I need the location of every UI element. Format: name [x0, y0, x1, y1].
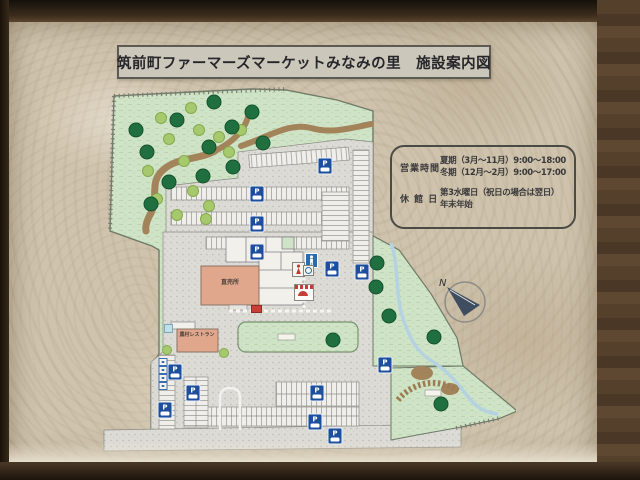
- parking-icon-letter: P: [312, 417, 317, 423]
- hours-info-box: 営業時間 夏期（3月～11月）9:00～18:00 冬期（12月～2月）9:00…: [390, 145, 576, 229]
- car-glyph: [321, 168, 330, 172]
- dirt-mound: [411, 366, 433, 380]
- sign-frame-top: [0, 0, 640, 22]
- parking-icon: P: [308, 414, 323, 431]
- tree: [170, 113, 184, 127]
- parking-icon-letter: P: [172, 367, 177, 373]
- parking-icon: P: [250, 244, 265, 261]
- business-hours-row: 営業時間 夏期（3月～11月）9:00～18:00 冬期（12月～2月）9:00…: [400, 155, 568, 180]
- parking-icon-letter: P: [382, 360, 387, 366]
- business-hours-label: 営業時間: [400, 161, 440, 174]
- tree: [204, 201, 215, 212]
- tree: [129, 123, 143, 137]
- parking-icon: P: [318, 158, 333, 175]
- bush: [219, 348, 229, 358]
- parking-icon: P: [168, 364, 183, 381]
- sign-title: 筑前町ファーマーズマーケットみなみの里 施設案内図: [117, 45, 491, 79]
- tree: [370, 256, 384, 270]
- car-glyph: [381, 367, 390, 371]
- compass-north-label: N: [439, 278, 447, 289]
- car-glyph: [253, 226, 262, 230]
- parking-icon: P: [186, 385, 201, 402]
- closed-days-row: 休 館 日 第3水曜日（祝日の場合は翌日） 年末年始: [400, 187, 568, 212]
- tree: [164, 134, 175, 145]
- summer-hours: 夏期（3月～11月）9:00～18:00: [440, 155, 566, 167]
- tree: [196, 169, 210, 183]
- tree: [226, 160, 240, 174]
- car-glyph: [253, 196, 262, 200]
- tree: [225, 120, 239, 134]
- tree: [188, 186, 199, 197]
- car-glyph: [189, 395, 198, 399]
- tree: [427, 330, 441, 344]
- tree: [144, 197, 158, 211]
- compass: N: [439, 278, 485, 322]
- closed-day-line: 第3水曜日（祝日の場合は翌日）: [440, 187, 559, 199]
- closed-day-line2: 年末年始: [440, 199, 559, 211]
- tree: [369, 280, 383, 294]
- kiosk-icon: [294, 284, 314, 301]
- tree: [140, 145, 154, 159]
- car-glyph: [358, 274, 367, 278]
- accessible-spot-icon: [159, 382, 168, 390]
- parking-icon: P: [250, 216, 265, 233]
- tree: [186, 103, 197, 114]
- parking-icon-letter: P: [359, 267, 364, 273]
- restaurant-building: [177, 329, 218, 352]
- sign-weathering: [9, 442, 597, 462]
- tree: [326, 333, 340, 347]
- accessible-spot-icon: [159, 374, 168, 382]
- tree: [143, 166, 154, 177]
- tree: [202, 140, 216, 154]
- tree: [434, 397, 448, 411]
- parking-icon: P: [325, 261, 340, 278]
- tree: [179, 156, 190, 167]
- car-glyph: [328, 271, 337, 275]
- bush: [162, 345, 172, 355]
- car-glyph: [313, 395, 322, 399]
- parking-icon-letter: P: [254, 189, 259, 195]
- sign-frame-left: [0, 0, 9, 480]
- parking-icon: P: [378, 357, 393, 374]
- closed-days-label: 休 館 日: [400, 192, 440, 205]
- parking-icon: P: [310, 385, 325, 402]
- parking-icon-letter: P: [329, 264, 334, 270]
- tree: [207, 95, 221, 109]
- parking-icon-letter: P: [254, 247, 259, 253]
- small-structure: [164, 324, 173, 333]
- parking-icon: P: [355, 264, 370, 281]
- car-glyph: [253, 254, 262, 258]
- tree: [382, 309, 396, 323]
- tree: [194, 125, 205, 136]
- main-shop-building: [201, 266, 259, 305]
- tree: [245, 105, 259, 119]
- accessible-spot-icon: [159, 358, 168, 366]
- car-glyph: [311, 424, 320, 428]
- parking-icon-letter: P: [190, 388, 195, 394]
- parking-icon-letter: P: [254, 219, 259, 225]
- tree: [256, 136, 270, 150]
- tree: [214, 132, 225, 143]
- sign-title-text: 筑前町ファーマーズマーケットみなみの里 施設案内図: [117, 52, 491, 73]
- tree: [162, 175, 176, 189]
- accessible-spot-icon: [159, 366, 168, 374]
- winter-hours: 冬期（12月～2月）9:00～17:00: [440, 167, 566, 179]
- parking-icon-letter: P: [332, 431, 337, 437]
- sign-frame-right: [597, 0, 640, 480]
- car-glyph: [161, 412, 170, 416]
- lawn-area: [238, 322, 358, 352]
- tree: [156, 113, 167, 124]
- car-glyph: [331, 438, 340, 442]
- tree: [201, 214, 212, 225]
- tree: [224, 147, 235, 158]
- lawn-label-chip: [278, 334, 295, 340]
- walkway-label-chip: [425, 390, 441, 396]
- current-location-marker: [251, 305, 262, 313]
- parking-icon-letter: P: [162, 405, 167, 411]
- restroom-accessible-icon: [303, 265, 314, 276]
- sign-face: 筑前町ファーマーズマーケットみなみの里 施設案内図: [9, 22, 597, 462]
- car-glyph: [171, 374, 180, 378]
- sign-frame-bottom: [0, 462, 640, 480]
- parking-icon: P: [158, 402, 173, 419]
- tree: [172, 210, 183, 221]
- parking-icon-letter: P: [322, 161, 327, 167]
- restaurant-annex: [171, 322, 195, 329]
- parking-icon-letter: P: [314, 388, 319, 394]
- parking-icon: P: [250, 186, 265, 203]
